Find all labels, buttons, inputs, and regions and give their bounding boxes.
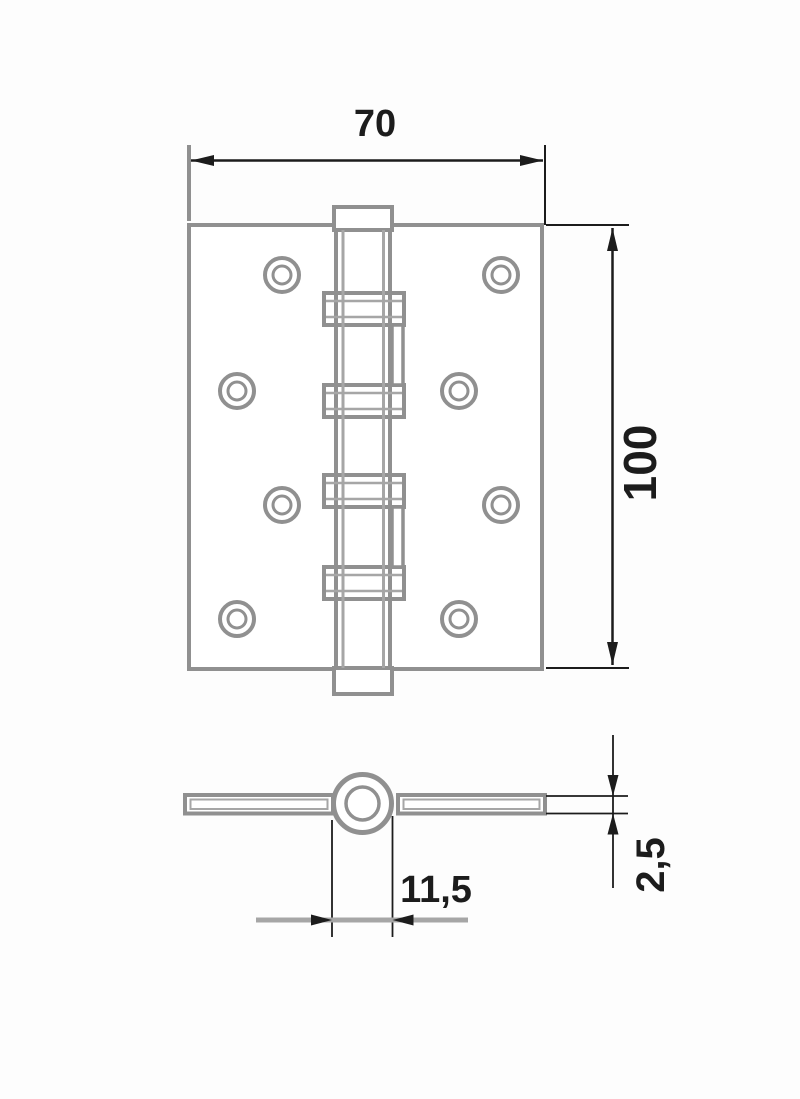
hinge-barrel	[324, 207, 404, 694]
hinge-side-view	[185, 775, 545, 833]
hinge-front-view	[189, 207, 542, 694]
dimension-leaf-thickness-label: 2,5	[629, 837, 673, 893]
pin-inner-circle	[346, 787, 379, 820]
arrowhead-left-icon	[191, 155, 214, 166]
dimension-leaf-thickness: 2,5	[546, 735, 673, 893]
right-leaf-section	[398, 795, 545, 814]
dimension-barrel-diameter-label: 11,5	[400, 869, 472, 911]
pin-top-cap	[334, 207, 392, 230]
knuckle-connector	[392, 325, 403, 385]
pin-bottom-cap	[334, 668, 392, 694]
arrowhead-right-icon	[311, 915, 332, 926]
arrowhead-down-icon	[607, 642, 618, 665]
arrowhead-up-icon	[607, 228, 618, 251]
arrowhead-right-icon	[520, 155, 543, 166]
left-leaf-section	[185, 795, 333, 814]
hinge-drawing-canvas: 70 100 11,5	[0, 0, 800, 1099]
arrowhead-up-icon	[608, 814, 619, 835]
barrel-section	[334, 775, 392, 833]
knuckle-connector	[392, 507, 403, 567]
arrowhead-down-icon	[608, 775, 619, 796]
arrowhead-left-icon	[393, 915, 414, 926]
dimension-height-label: 100	[614, 425, 666, 502]
dimension-height: 100	[546, 225, 666, 668]
dimension-width-label: 70	[354, 103, 396, 145]
technical-drawing-page: 70 100 11,5	[0, 0, 800, 1099]
